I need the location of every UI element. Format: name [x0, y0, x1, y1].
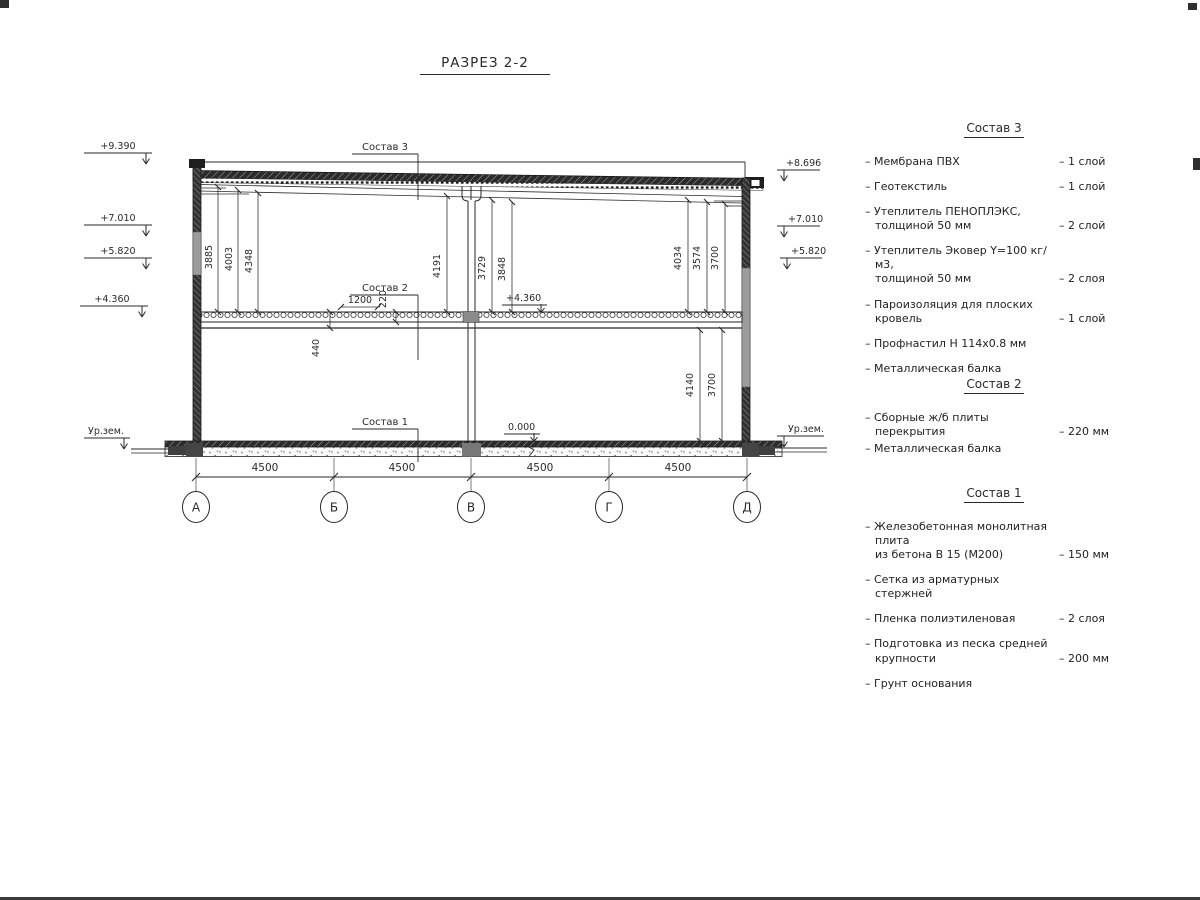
level-7010-left: +7.010	[100, 213, 135, 224]
level-4360-left: +4.360	[94, 294, 129, 305]
scan-artifact	[1193, 158, 1200, 170]
dim-4003: 4003	[224, 247, 235, 271]
dim-440: 440	[311, 339, 322, 357]
legend-sostav1: Состав 1 – Железобетонная монолитная пли…	[865, 486, 1123, 702]
grid-letter-V: В	[467, 501, 475, 515]
right-wall	[742, 178, 750, 443]
levels-right: +8.696 +7.010 +5.820 Ур.зем.	[777, 158, 826, 447]
grid-letter-B: Б	[330, 501, 338, 515]
legend-item: – Грунт основания	[865, 677, 1123, 691]
legend-sostav2-title: Состав 2	[865, 377, 1123, 391]
level-4360-floor2: +4.360	[506, 293, 541, 304]
dim-4348: 4348	[244, 249, 255, 273]
dim-4500-1: 4500	[252, 462, 279, 474]
legend-item: – Пароизоляция для плоских кровель – 1 с…	[865, 298, 1123, 326]
item-qty: – 2 слой	[1059, 219, 1123, 233]
item-name: – Пароизоляция для плоских кровель	[865, 298, 1059, 326]
level-9390: +9.390	[100, 141, 135, 152]
dim-1200: 1200	[348, 295, 372, 306]
level-5820-right: +5.820	[791, 246, 826, 257]
item-qty: – 1 слой	[1059, 180, 1123, 194]
legend-sostav3: Состав 3 – Мембрана ПВХ – 1 слой – Геоте…	[865, 121, 1123, 387]
legend-item: – Сетка из арматурных стержней	[865, 573, 1123, 601]
item-name: – Мембрана ПВХ	[865, 155, 1059, 169]
dim-4034: 4034	[673, 246, 684, 270]
legend-item: – Пленка полиэтиленовая – 2 слоя	[865, 612, 1123, 626]
legend-item: – Утеплитель Эковер Y=100 кг/м3, толщино…	[865, 244, 1123, 286]
item-qty: – 1 слой	[1059, 155, 1123, 169]
item-name: – Профнастил Н 114х0.8 мм	[865, 337, 1059, 351]
scan-artifact	[0, 0, 9, 8]
item-qty: – 2 слоя	[1059, 612, 1123, 626]
dim-3885: 3885	[204, 245, 215, 269]
ground-level-right: Ур.зем.	[788, 424, 824, 435]
item-qty: – 200 мм	[1059, 652, 1123, 666]
item-name: – Железобетонная монолитная плита из бет…	[865, 520, 1059, 562]
level-zero: 0.000	[508, 422, 535, 433]
item-qty: – 150 мм	[1059, 548, 1123, 562]
dims-upper-labels: 3885 4003 4348 4191 3729 3848 4034 3574 …	[204, 245, 721, 281]
dim-3729: 3729	[477, 256, 488, 280]
legend-item: – Утеплитель ПЕНОПЛЭКС, толщиной 50 мм –…	[865, 205, 1123, 233]
dims-upper	[218, 187, 725, 312]
floor-slab	[201, 312, 742, 329]
leader-sostav1: Состав 1	[362, 417, 408, 428]
levels-left: +9.390 +7.010 +5.820 +4.360 Ур.зем.	[80, 141, 152, 449]
legend-item: – Железобетонная монолитная плита из бет…	[865, 520, 1123, 562]
legend-item: – Геотекстиль – 1 слой	[865, 180, 1123, 194]
drawing-sheet: РАЗРЕЗ 2-2	[0, 0, 1200, 900]
legend-item: – Металлическая балка	[865, 442, 1123, 456]
item-qty: – 2 слоя	[1059, 272, 1123, 286]
dim-3700-upper: 3700	[710, 246, 721, 270]
grid-letter-G: Г	[605, 501, 612, 515]
footing-left	[186, 443, 203, 457]
scan-artifact	[1188, 3, 1197, 10]
item-name: – Утеплитель Эковер Y=100 кг/м3, толщино…	[865, 244, 1059, 286]
dim-3700-lower: 3700	[707, 373, 718, 397]
leader-sostav3: Состав 3	[362, 142, 408, 153]
legend-item: – Сборные ж/б плиты перекрытия – 220 мм	[865, 411, 1123, 439]
item-name: – Подготовка из песка средней крупности	[865, 637, 1059, 665]
item-name: – Сборные ж/б плиты перекрытия	[865, 411, 1059, 439]
level-8696: +8.696	[786, 158, 821, 169]
grid-letter-D: Д	[742, 501, 751, 515]
left-parapet-cap	[189, 159, 205, 168]
item-name: – Утеплитель ПЕНОПЛЭКС, толщиной 50 мм	[865, 205, 1059, 233]
footing-center	[462, 443, 481, 457]
ground-level-left: Ур.зем.	[88, 426, 124, 437]
leader-sostav2: Состав 2	[362, 283, 408, 294]
legend-item: – Профнастил Н 114х0.8 мм	[865, 337, 1123, 351]
legend-item: – Подготовка из песка средней крупности …	[865, 637, 1123, 665]
item-name: – Металлическая балка	[865, 362, 1059, 376]
grid-letter-A: А	[192, 501, 201, 515]
dim-3574: 3574	[692, 246, 703, 270]
dim-4140: 4140	[685, 373, 696, 397]
legend-item: – Мембрана ПВХ – 1 слой	[865, 155, 1123, 169]
left-wall	[189, 159, 205, 443]
dim-4500-3: 4500	[527, 462, 554, 474]
dim-4191: 4191	[432, 254, 443, 278]
item-name: – Сетка из арматурных стержней	[865, 573, 1059, 601]
item-name: – Геотекстиль	[865, 180, 1059, 194]
item-qty: – 220 мм	[1059, 425, 1123, 439]
dim-4500-2: 4500	[389, 462, 416, 474]
legend-sostav2: Состав 2 – Сборные ж/б плиты перекрытия …	[865, 377, 1123, 467]
footing-right	[742, 443, 759, 457]
item-qty: – 1 слой	[1059, 312, 1123, 326]
legend-sostav1-title: Состав 1	[865, 486, 1123, 500]
item-name: – Металлическая балка	[865, 442, 1059, 456]
grid-axes: 4500 4500 4500 4500 А Б В Г Д	[183, 458, 761, 523]
dim-3848: 3848	[497, 257, 508, 281]
ground-slab	[131, 441, 827, 457]
item-name: – Грунт основания	[865, 677, 1059, 691]
legend-sostav3-title: Состав 3	[865, 121, 1123, 135]
legend-item: – Металлическая балка	[865, 362, 1123, 376]
level-7010-right: +7.010	[788, 214, 823, 225]
dims-lower-labels: 440 220 1200 4140 3700	[311, 290, 718, 397]
level-5820-left: +5.820	[100, 246, 135, 257]
item-name: – Пленка полиэтиленовая	[865, 612, 1059, 626]
dim-4500-4: 4500	[665, 462, 692, 474]
